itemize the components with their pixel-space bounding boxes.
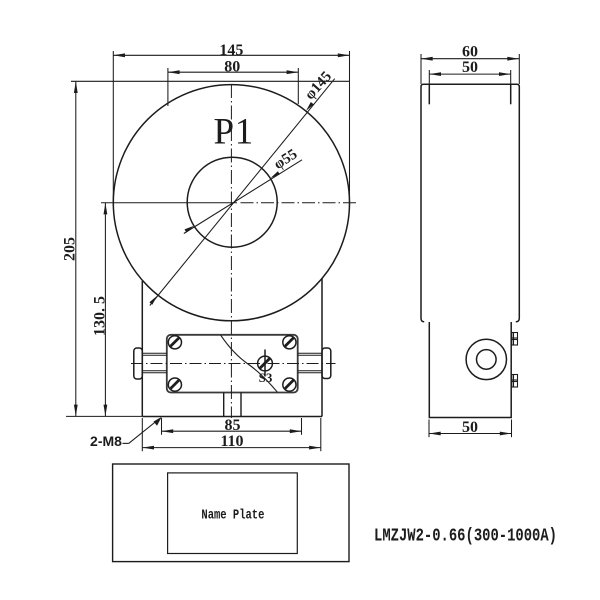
svg-text:Name Plate: Name Plate — [201, 508, 264, 524]
svg-text:145: 145 — [219, 42, 243, 59]
svg-text:85: 85 — [225, 417, 241, 434]
svg-text:φ55: φ55 — [271, 146, 300, 173]
svg-text:S3: S3 — [259, 370, 273, 385]
svg-text:205: 205 — [62, 237, 79, 261]
svg-text:130. 5: 130. 5 — [91, 296, 108, 336]
svg-text:80: 80 — [224, 58, 240, 75]
svg-text:50: 50 — [462, 59, 478, 76]
svg-text:1: 1 — [235, 112, 254, 153]
svg-text:P: P — [214, 112, 235, 153]
svg-text:2-M8: 2-M8 — [90, 433, 122, 449]
svg-text:110: 110 — [220, 433, 243, 450]
svg-text:60: 60 — [462, 44, 478, 61]
svg-text:LMZJW2-0.66(300-1000A): LMZJW2-0.66(300-1000A) — [374, 527, 557, 547]
svg-text:50: 50 — [462, 419, 478, 436]
